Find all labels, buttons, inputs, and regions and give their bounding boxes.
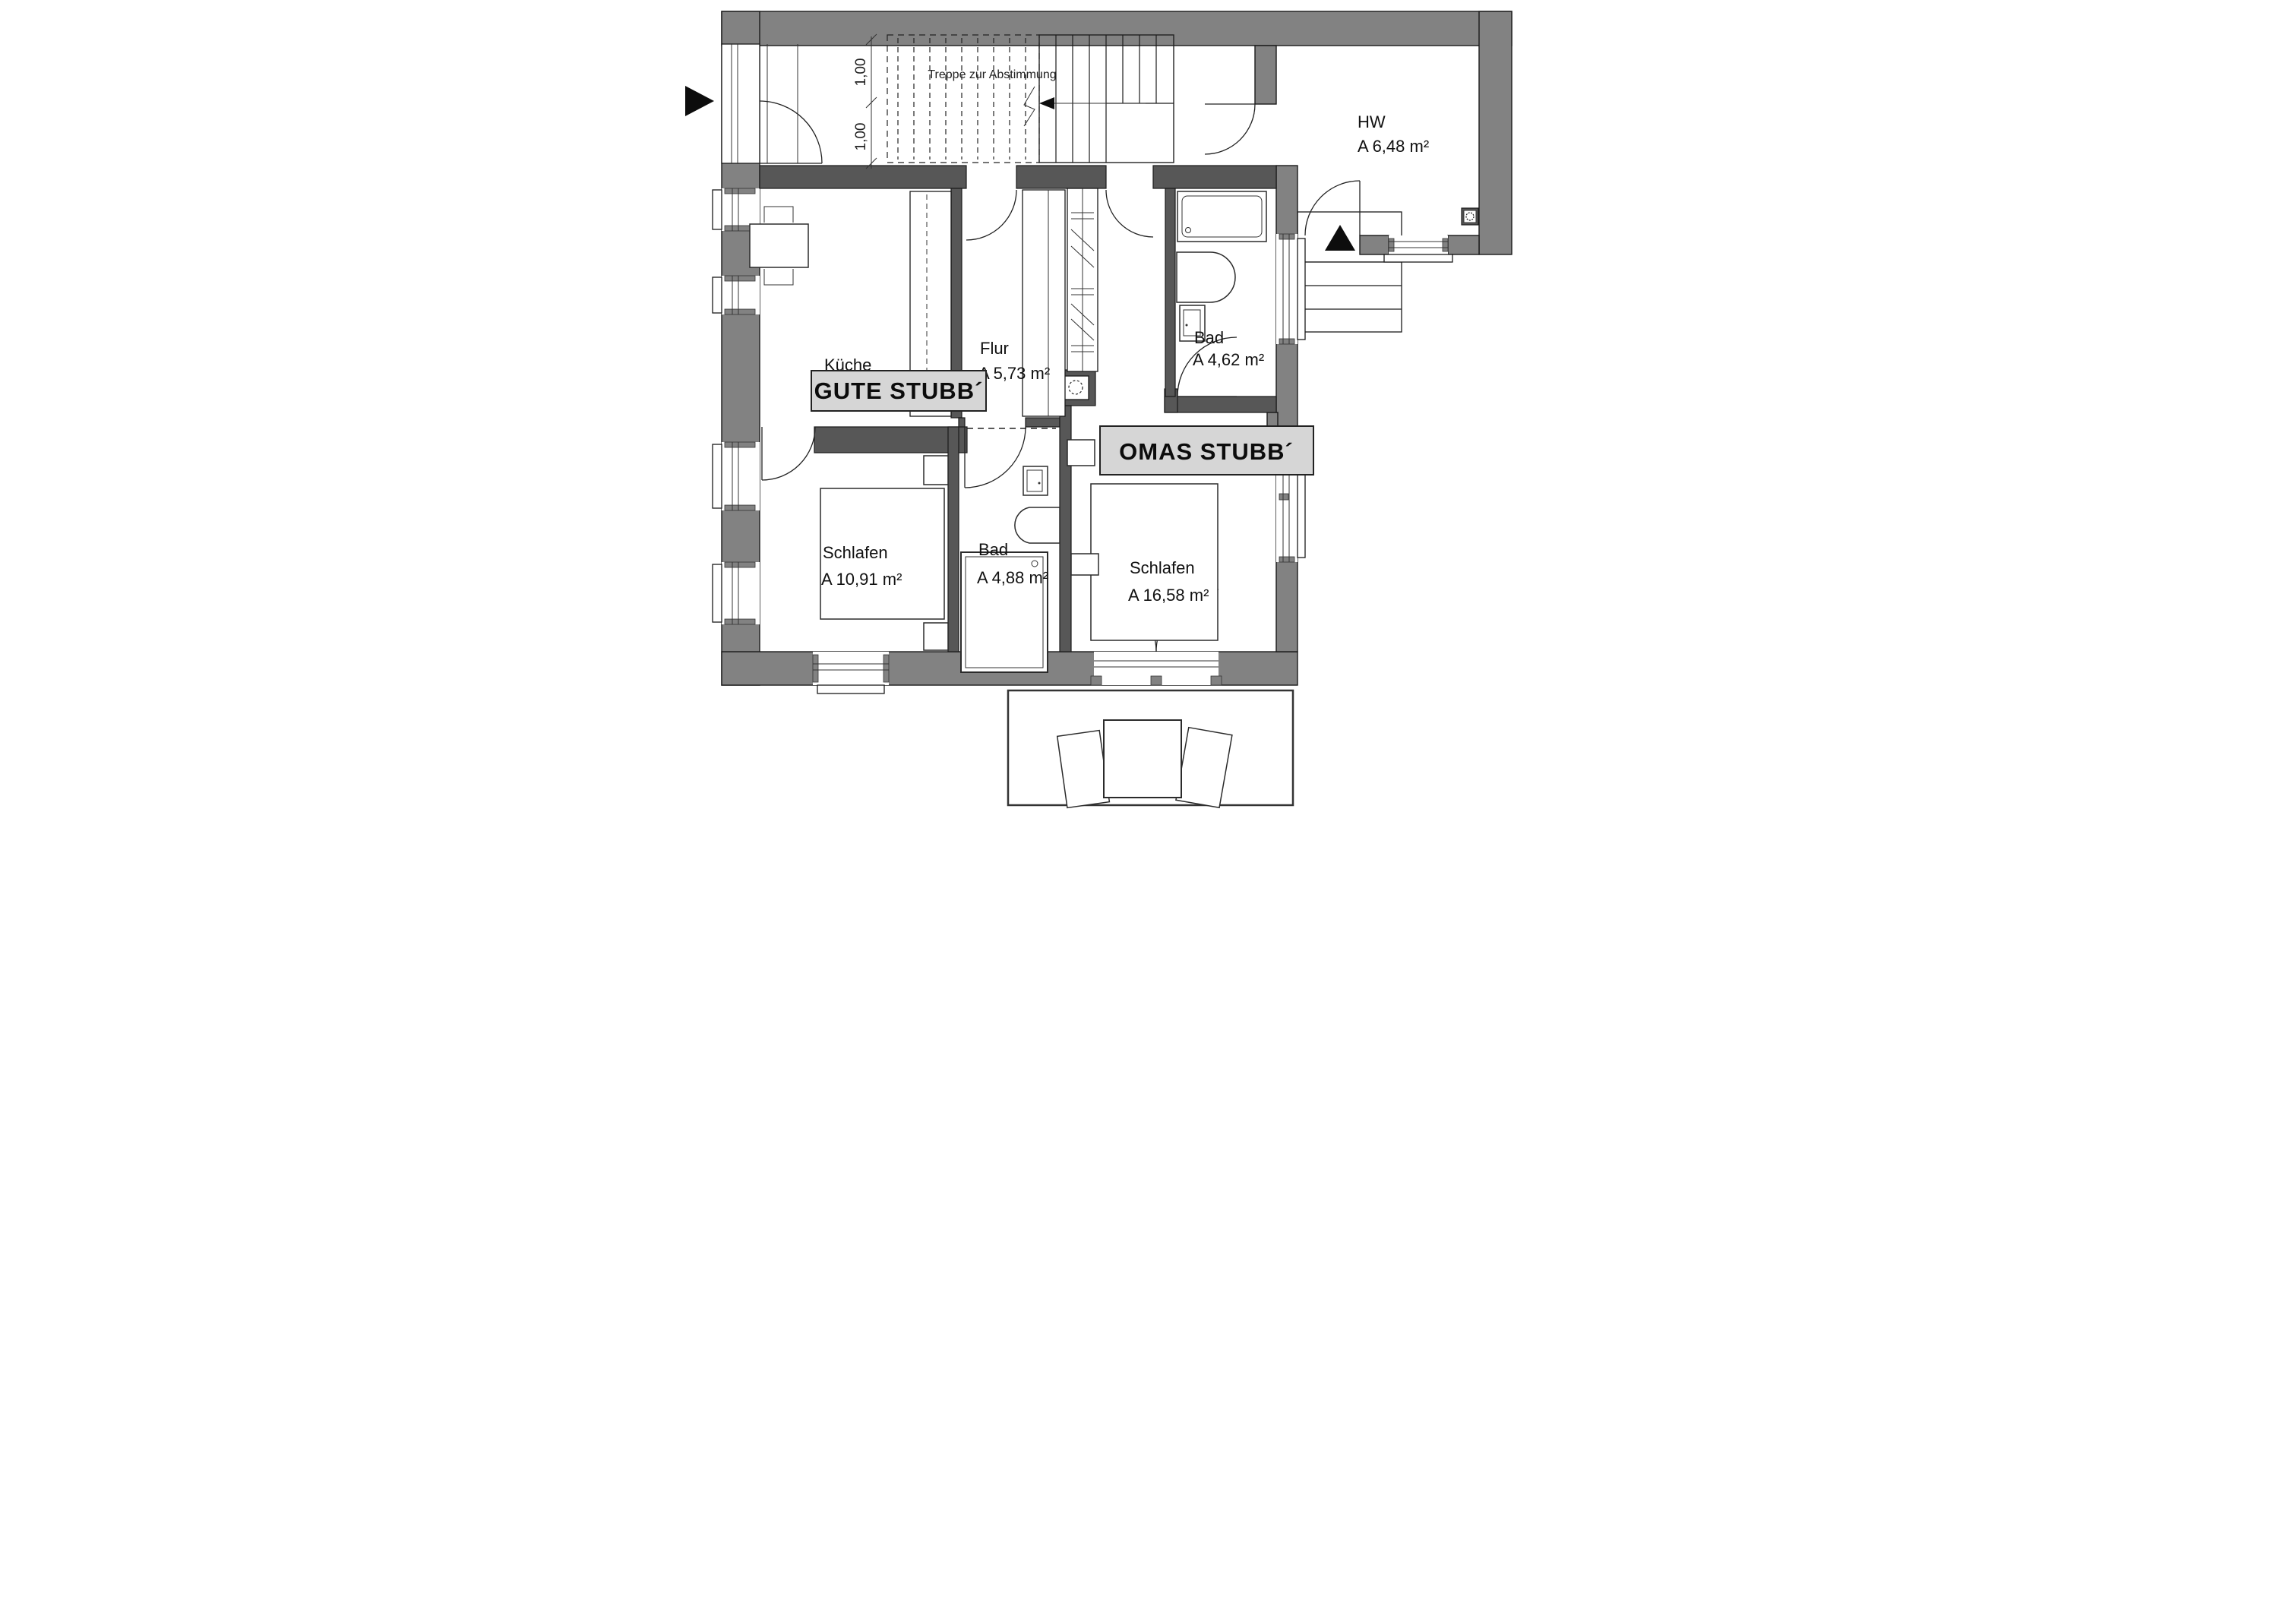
room-name-label: Schlafen [823, 543, 888, 562]
room-name-label: HW [1358, 112, 1386, 131]
window [1276, 234, 1305, 344]
window [713, 562, 760, 624]
room-name-label: Bad [1194, 328, 1224, 347]
room-name-label: Bad [978, 540, 1008, 559]
glass-partition [1067, 188, 1098, 371]
nightstand [924, 456, 948, 485]
floor-plan-canvas: 1,00 1,00 [570, 0, 1709, 812]
stair-direction-arrow-icon [1024, 87, 1146, 126]
kitchen-chair [764, 207, 793, 223]
room-hw: HW A 6,48 m² [1358, 112, 1429, 156]
tag-label: OMAS STUBB´ [1119, 438, 1294, 465]
room-area-label: A 4,62 m² [1193, 350, 1264, 369]
tag-gute-stubb: GUTE STUBB´ [811, 371, 986, 411]
room-area-label: A 10,91 m² [821, 570, 902, 589]
kitchen-chair [764, 269, 793, 285]
staircase [887, 35, 1174, 163]
dimension-line: 1,00 1,00 [853, 34, 877, 169]
tag-omas-stubb: OMAS STUBB´ [1100, 426, 1313, 475]
tag-label: GUTE STUBB´ [814, 378, 984, 404]
entrance-unit [722, 44, 822, 163]
nightstand [924, 623, 948, 650]
room-name-label: Schlafen [1130, 558, 1195, 577]
kitchen-table [750, 224, 808, 267]
window [813, 652, 889, 694]
room-area-label: A 4,88 m² [977, 568, 1048, 587]
terrace-table [1104, 720, 1181, 798]
terrace [1008, 690, 1293, 807]
window [1384, 235, 1452, 262]
window [713, 276, 760, 314]
entrance-arrow-icon [685, 86, 714, 116]
hw-fixture [1462, 208, 1478, 225]
nightstand [1071, 554, 1098, 575]
room-area-label: A 5,73 m² [978, 364, 1050, 383]
dimension-label: 1,00 [853, 123, 869, 151]
washbasin [1015, 507, 1060, 543]
dimension-label: 1,00 [853, 58, 869, 87]
floor-plan-page: 1,00 1,00 [570, 0, 1709, 812]
bad-oben-fixtures [1177, 191, 1266, 341]
room-area-label: A 16,58 m² [1128, 586, 1209, 605]
bathtub [1177, 191, 1266, 242]
nightstand [1067, 440, 1095, 466]
room-bad-oben: Bad A 4,62 m² [1193, 328, 1264, 369]
window [713, 442, 760, 510]
room-area-label: A 6,48 m² [1358, 137, 1429, 156]
washbasin [1177, 252, 1235, 302]
exterior-stairs [1298, 212, 1402, 332]
room-name-label: Flur [980, 339, 1009, 358]
stairs-annotation: Treppe zur Abstimmung [928, 68, 1056, 81]
